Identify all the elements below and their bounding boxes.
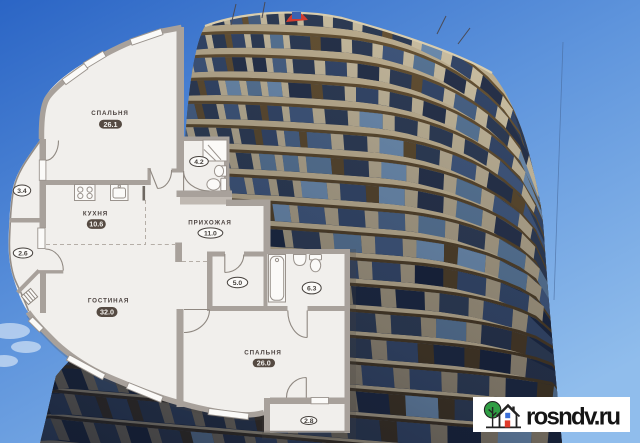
svg-text:СПАЛЬНЯ: СПАЛЬНЯ [244, 349, 281, 356]
svg-text:11.0: 11.0 [204, 231, 217, 238]
svg-text:26.1: 26.1 [104, 120, 118, 129]
svg-text:ГОСТИНАЯ: ГОСТИНАЯ [88, 297, 129, 304]
svg-text:5.0: 5.0 [233, 280, 243, 287]
svg-text:32.0: 32.0 [100, 308, 114, 317]
svg-text:2.6: 2.6 [18, 251, 28, 258]
svg-text:10.6: 10.6 [89, 220, 103, 229]
svg-text:2.8: 2.8 [304, 418, 314, 425]
svg-text:4.2: 4.2 [194, 159, 204, 166]
svg-text:rosndv.ru: rosndv.ru [526, 404, 621, 431]
svg-text:СПАЛЬНЯ: СПАЛЬНЯ [91, 110, 128, 117]
svg-text:6.3: 6.3 [307, 286, 317, 293]
svg-text:КУХНЯ: КУХНЯ [83, 210, 108, 217]
svg-text:3.4: 3.4 [17, 188, 27, 195]
svg-text:ПРИХОЖАЯ: ПРИХОЖАЯ [188, 219, 231, 226]
svg-text:26.0: 26.0 [257, 359, 271, 368]
